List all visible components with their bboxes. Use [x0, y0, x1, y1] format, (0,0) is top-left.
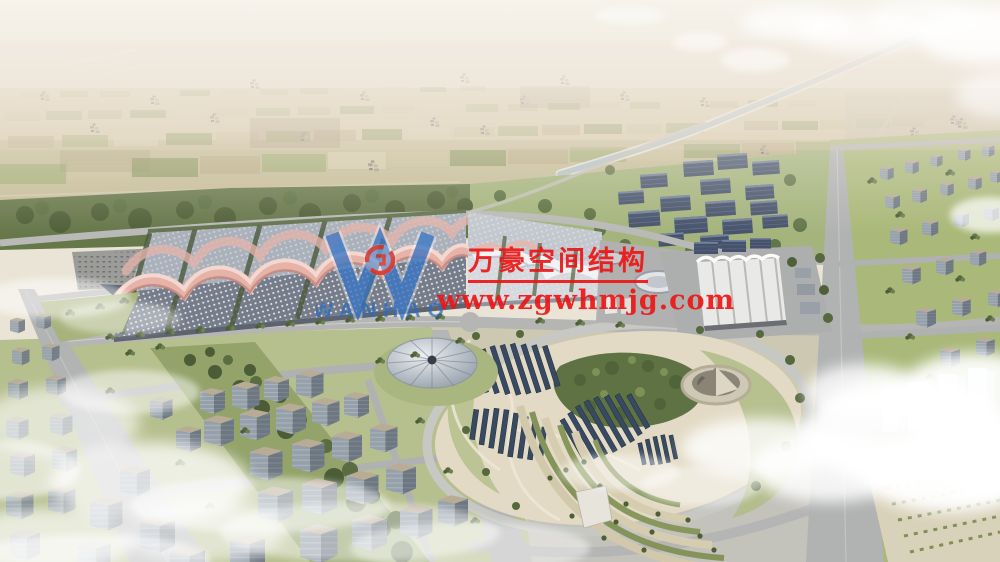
scene-canvas — [0, 0, 1000, 562]
conference-hall — [660, 238, 833, 342]
aerial-rendering: WANHAO 万豪空间结构 www.zgwhmjg.com — [0, 0, 1000, 562]
cone-pavilion — [682, 366, 750, 404]
disc-building — [599, 252, 625, 264]
dome-pavilion — [374, 338, 498, 406]
